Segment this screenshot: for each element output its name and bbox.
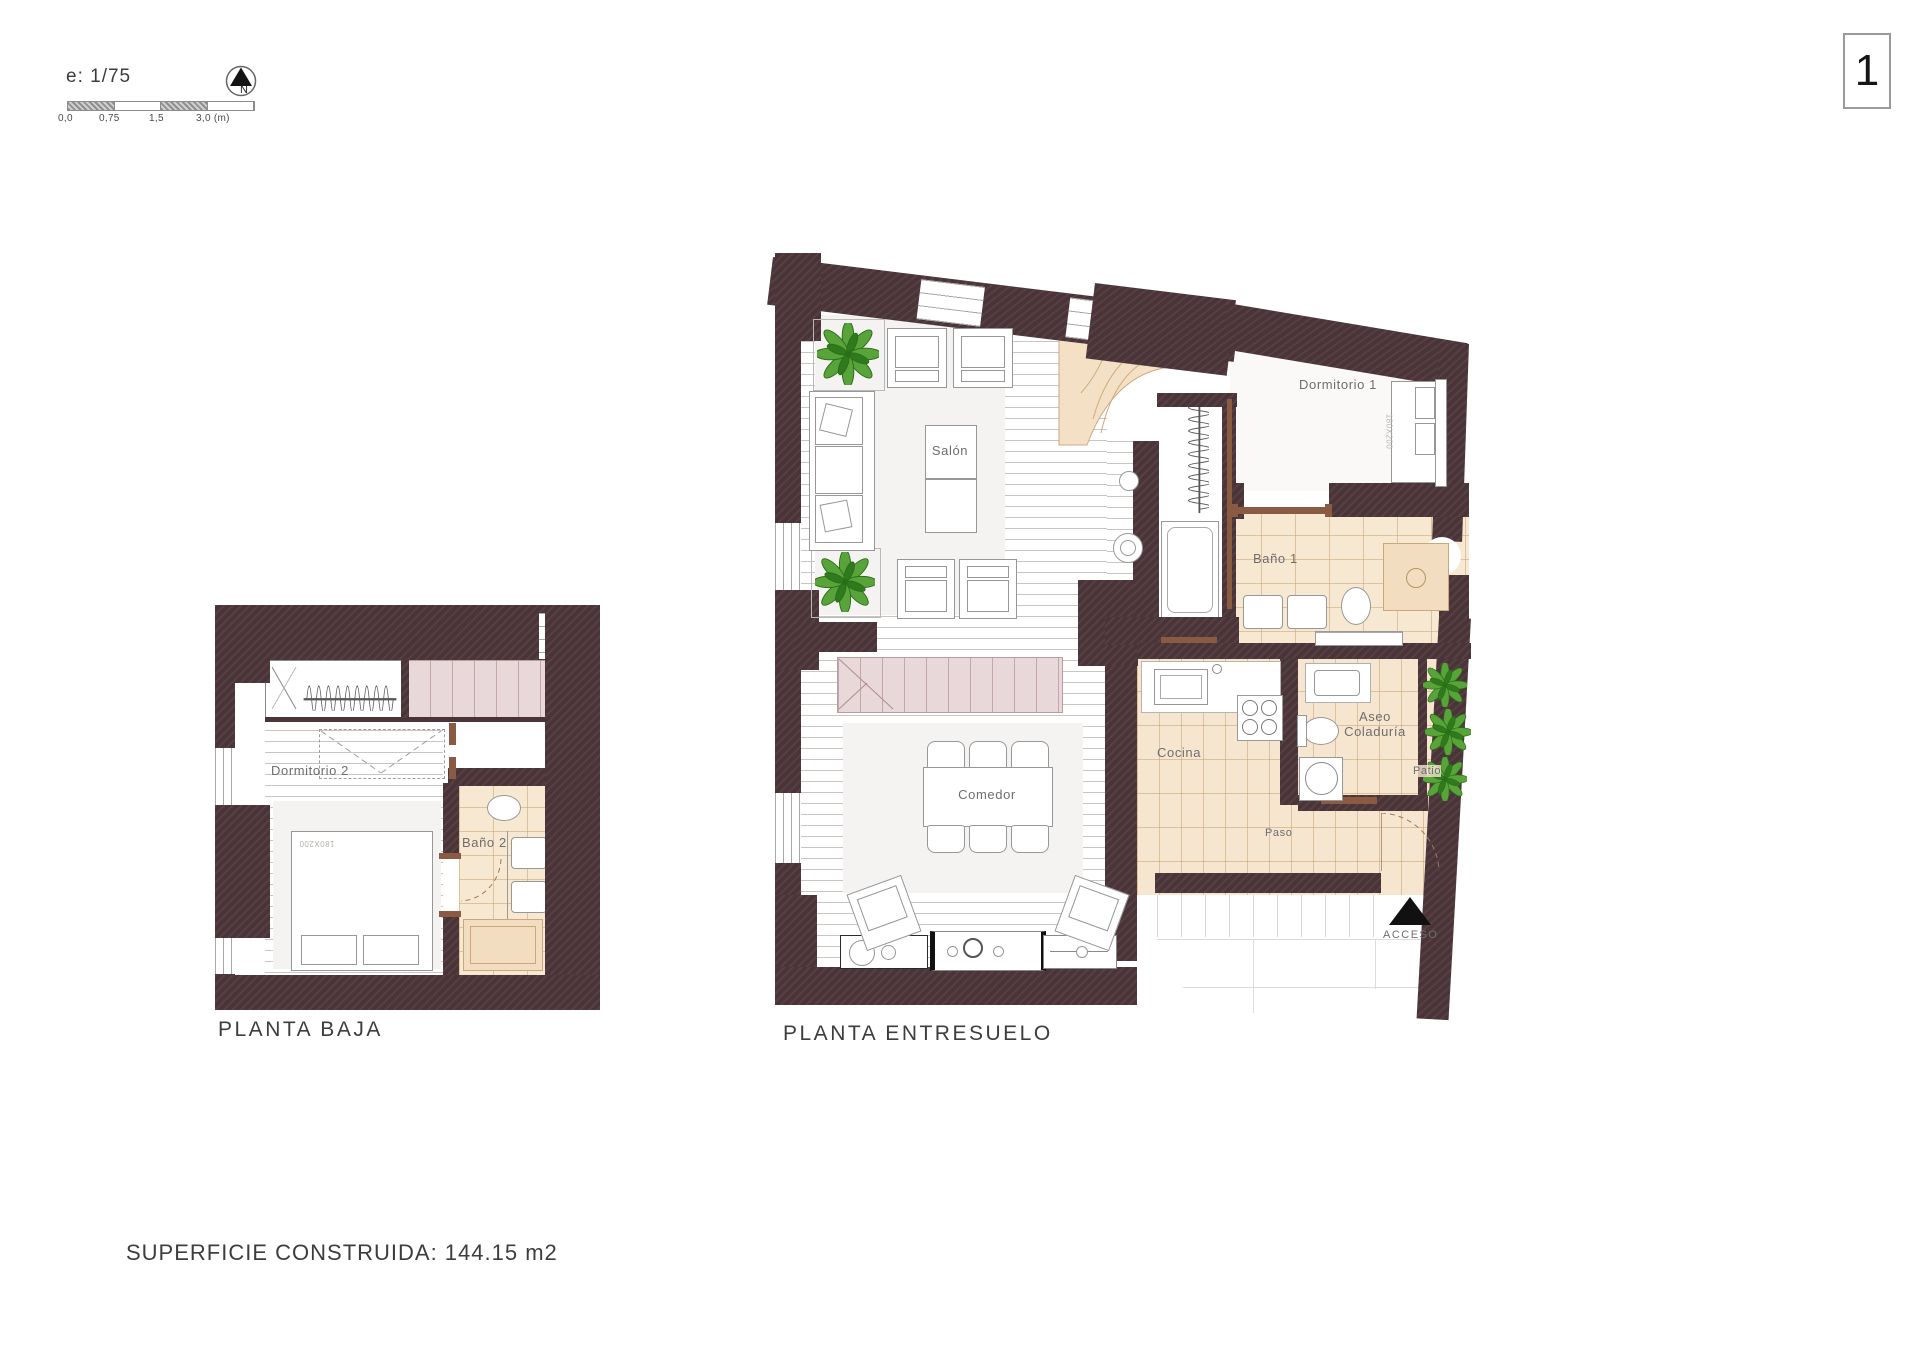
acceso-arrow-icon	[1389, 897, 1431, 925]
plan-planta-baja: 180X200 Dormitorio 2 Baño 2	[215, 605, 600, 1010]
toilet-icon	[487, 795, 521, 821]
wall	[215, 805, 270, 938]
plan-title-baja: PLANTA BAJA	[218, 1018, 383, 1042]
sofa-icon	[809, 391, 875, 551]
chair-icon	[927, 741, 965, 769]
chair-icon	[1011, 741, 1049, 769]
plant-icon	[815, 552, 875, 612]
window	[775, 523, 801, 593]
door-post	[439, 853, 461, 859]
sheet-number-box: 1	[1843, 33, 1891, 109]
chair-icon	[1011, 825, 1049, 853]
bed-size-label: 180X200	[1384, 414, 1393, 450]
small-circle	[881, 945, 896, 960]
chair-icon	[969, 741, 1007, 769]
scale-bar-segment	[161, 102, 207, 110]
room-label-patio: Patio	[1413, 765, 1441, 777]
washing-machine-icon	[1299, 757, 1343, 801]
wall	[1329, 483, 1469, 517]
armchair-cushion	[857, 885, 908, 931]
window	[215, 938, 235, 974]
sink-icon	[511, 881, 547, 913]
kitchen-sink-icon	[1154, 669, 1208, 705]
door-arc	[459, 857, 503, 903]
door-opening	[443, 857, 459, 913]
wall	[545, 605, 600, 1010]
burner	[1242, 719, 1258, 735]
svg-text:N: N	[240, 84, 248, 96]
room-label-paso: Paso	[1265, 827, 1292, 839]
wc-toilet-inner	[1120, 540, 1136, 556]
small-circle	[993, 946, 1004, 957]
room-label-salon: Salón	[917, 443, 983, 458]
hangers-icon	[302, 667, 398, 711]
stair-baja	[407, 660, 547, 720]
closet-door-rail	[1227, 399, 1232, 609]
pillow	[1415, 423, 1435, 455]
plant-icon	[1423, 757, 1467, 801]
door-post	[439, 911, 461, 917]
door-rail	[449, 723, 456, 745]
coffee-table	[925, 479, 977, 533]
counter-line	[507, 831, 508, 927]
pillow	[820, 500, 853, 533]
door-rail	[449, 757, 456, 779]
window-niche	[930, 931, 1046, 971]
sink-icon	[511, 837, 547, 869]
shower-tray	[1383, 543, 1449, 611]
pillow	[1415, 387, 1435, 419]
wall	[215, 975, 600, 1010]
armchair-icon	[887, 328, 947, 388]
stove-icon	[1237, 695, 1283, 741]
chair-icon	[969, 825, 1007, 853]
wall	[448, 768, 545, 786]
pillow	[301, 935, 357, 965]
stair-arrow	[837, 657, 897, 711]
armchair-icon	[897, 559, 955, 619]
pillow	[363, 935, 419, 965]
shower-drain	[1406, 568, 1426, 588]
room-label-aseo: Aseo Coladuría	[1327, 709, 1423, 739]
armchair-cushion	[961, 336, 1005, 368]
toilet-icon	[1341, 587, 1371, 625]
washer-drum	[1305, 762, 1338, 795]
fixture-circle	[963, 938, 983, 958]
window	[775, 793, 801, 863]
bathtub-inner	[1167, 527, 1213, 613]
paving-line	[1375, 939, 1376, 989]
wall	[775, 967, 1137, 1005]
shower-inner	[470, 926, 536, 964]
room-label-dormitorio2: Dormitorio 2	[271, 763, 349, 778]
armchair-icon	[953, 328, 1013, 388]
room-label-dormitorio1: Dormitorio 1	[1299, 377, 1377, 392]
armchair-cushion	[895, 336, 939, 368]
sheet-number: 1	[1855, 46, 1879, 96]
floor-plan-sheet: e: 1/75 0,0 0,75 1,5 3,0 (m) N 1	[0, 0, 1920, 1358]
room-label-bano1: Baño 1	[1253, 551, 1298, 566]
plan-title-entresuelo: PLANTA ENTRESUELO	[783, 1022, 1053, 1046]
armchair-cushion	[1068, 885, 1119, 931]
burner	[1242, 700, 1258, 716]
closet-baja	[265, 660, 403, 720]
wall	[215, 605, 270, 683]
burner	[1261, 700, 1277, 716]
armchair-front	[967, 566, 1009, 578]
shower-tray	[463, 919, 543, 971]
closet-arrow-icon	[268, 663, 302, 715]
wall	[1133, 441, 1159, 619]
sink-icon	[1314, 670, 1360, 696]
armchair-front	[961, 370, 1005, 382]
paving-line	[1183, 987, 1445, 988]
wall	[795, 622, 877, 652]
wall	[1137, 643, 1471, 659]
armchair-icon	[959, 559, 1017, 619]
door-post	[1325, 504, 1332, 517]
scale-tick: 3,0 (m)	[196, 113, 230, 124]
scale-label: e: 1/75	[66, 66, 131, 88]
plan-planta-entresuelo: Salón 180X200 Dormitorio 1 Baño 1	[775, 245, 1495, 1020]
north-arrow-icon: N	[224, 64, 258, 98]
sliding-door-rail	[1161, 637, 1217, 643]
armchair-front	[895, 370, 939, 382]
chair-icon	[927, 825, 965, 853]
window-sill	[1315, 631, 1403, 646]
wall	[401, 660, 409, 718]
plant-icon	[817, 323, 879, 385]
small-circle	[1076, 946, 1088, 958]
scale-tick: 0,75	[99, 113, 120, 124]
armchair-cushion	[905, 580, 947, 612]
scale-bar-segment	[68, 102, 114, 110]
built-area-label: SUPERFICIE CONSTRUIDA: 144.15 m2	[126, 1240, 558, 1266]
armchair-front	[905, 566, 947, 578]
window	[215, 748, 235, 805]
door-arc	[1381, 813, 1441, 873]
door-post	[1231, 504, 1238, 517]
scale-tick: 1,5	[149, 113, 164, 124]
scale-bar	[67, 101, 255, 111]
bed-headboard	[1435, 379, 1447, 487]
exterior-steps	[1157, 895, 1387, 937]
access-label: ACCESO	[1383, 929, 1438, 941]
toilet-tank	[1297, 715, 1307, 747]
scale-bar-segment	[207, 102, 255, 110]
paving-line	[1253, 939, 1254, 1013]
plant-icon	[1423, 663, 1467, 707]
burner	[1261, 719, 1277, 735]
sliding-door-rail	[1235, 507, 1329, 514]
wc-sink-icon	[1119, 471, 1139, 491]
window	[917, 279, 985, 327]
armchair-cushion	[967, 580, 1009, 612]
bathtub-icon	[1161, 521, 1219, 619]
hangers-icon	[1173, 399, 1209, 515]
small-circle	[947, 946, 958, 957]
faucet	[1212, 664, 1222, 674]
plant-icon	[1425, 709, 1471, 755]
room-label-cocina: Cocina	[1157, 745, 1201, 760]
sofa-cushion	[815, 446, 863, 494]
scale-bar-segment	[114, 102, 162, 110]
room-label-comedor: Comedor	[933, 787, 1041, 802]
room-label-bano2: Baño 2	[462, 835, 507, 850]
sink-basin	[1160, 675, 1202, 699]
bed-size-label: 180X200	[299, 839, 335, 848]
sink-icon	[1243, 595, 1283, 629]
sink-icon	[1287, 595, 1327, 629]
scale-tick: 0,0	[58, 113, 73, 124]
wall	[1155, 873, 1381, 893]
wall	[1157, 393, 1237, 407]
aseo-sink-counter	[1305, 663, 1371, 703]
